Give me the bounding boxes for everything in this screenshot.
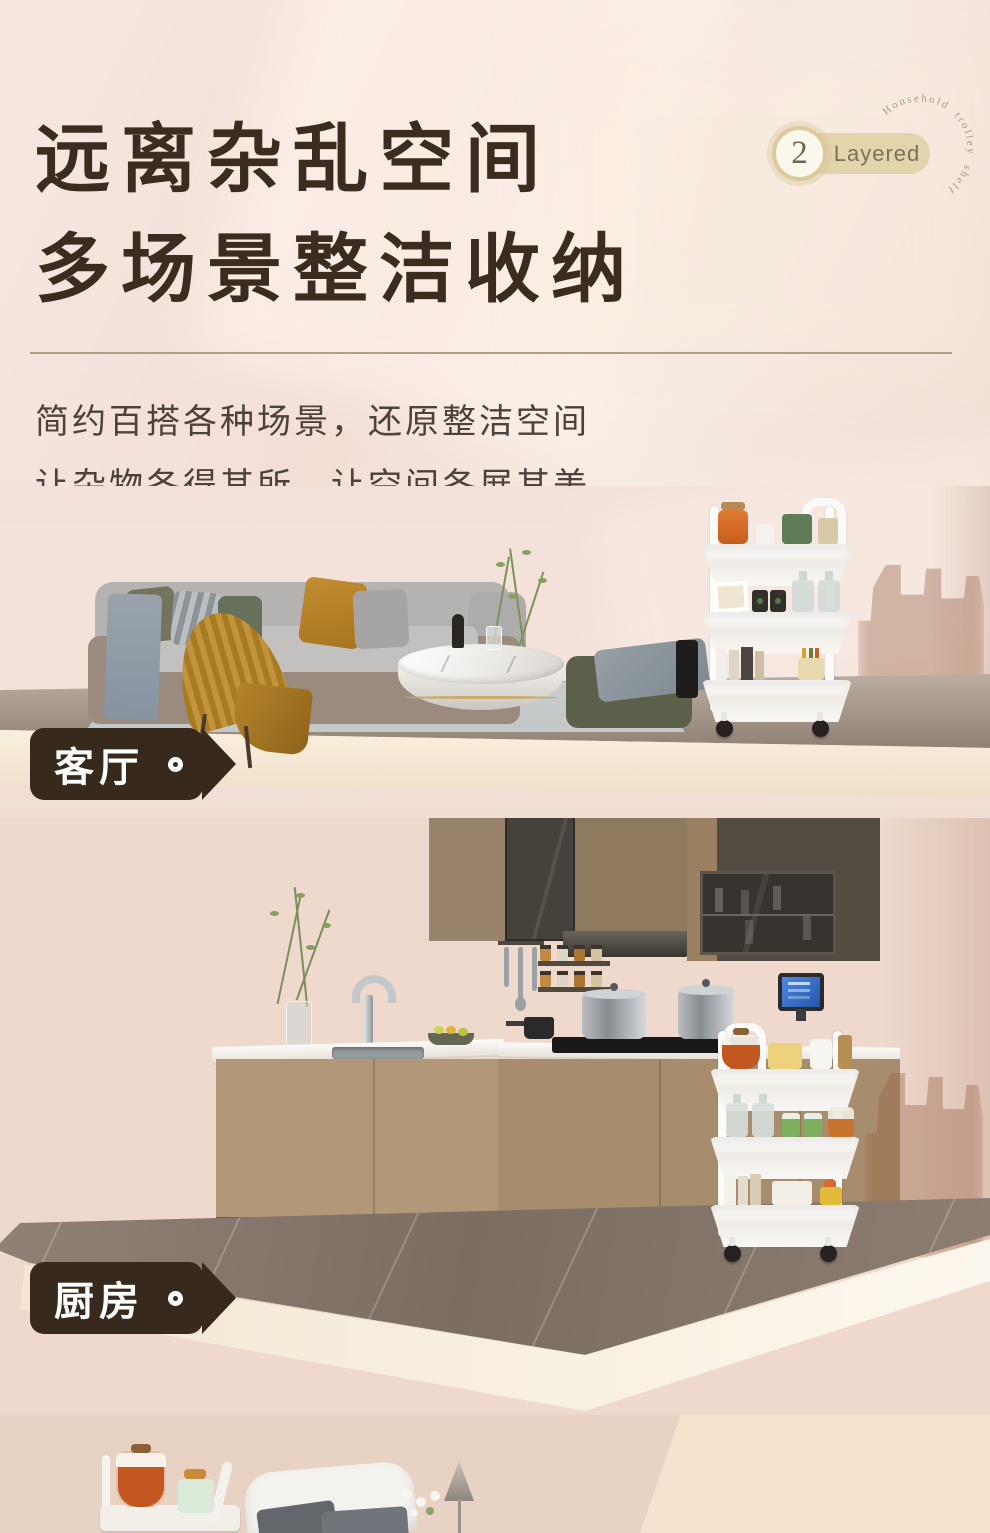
floor-lamp-shade <box>444 1461 474 1501</box>
page-title: 远离杂乱空间 多场景整洁收纳 <box>35 104 637 324</box>
cup-item <box>756 524 774 544</box>
book-item <box>729 650 739 680</box>
glass-bottle-item <box>818 580 840 612</box>
caster-wheel <box>820 1245 837 1262</box>
scene-tag-label: 客厅 <box>54 735 144 793</box>
ring-icon <box>168 757 183 772</box>
box-item <box>772 1181 812 1205</box>
box-item <box>178 1479 214 1513</box>
table-glass-vase <box>486 626 502 650</box>
jar-item <box>810 1039 832 1069</box>
scene-tag-living-room: 客厅 <box>30 728 203 800</box>
spoon-utensil <box>518 947 523 1001</box>
teapot-item <box>722 1035 760 1069</box>
trolley-tier-items <box>714 1165 862 1205</box>
storage-trolley <box>700 498 860 743</box>
caster-wheel <box>716 720 733 737</box>
title-line-2: 多场景整洁收纳 <box>35 214 637 324</box>
ring-icon <box>168 1291 183 1306</box>
scene-tag-label: 厨房 <box>54 1269 144 1327</box>
box-item <box>782 514 812 544</box>
bed-pillow <box>321 1506 409 1533</box>
badge-number-circle: 2 <box>772 126 827 181</box>
cutting-board-item <box>838 1035 852 1069</box>
faucet <box>352 975 396 1003</box>
saucepan <box>524 1017 554 1039</box>
marble-vein-decor <box>420 654 540 674</box>
header-section: 远离杂乱空间 多场景整洁收纳 2 Layered Household troll… <box>0 0 990 490</box>
book-item <box>724 1173 736 1205</box>
plant-leaf <box>296 893 305 898</box>
whisk-utensil <box>532 947 537 991</box>
faucet-stem <box>364 995 373 1043</box>
storage-trolley <box>708 1023 868 1268</box>
jar-item <box>718 510 748 544</box>
spice-jar-row <box>540 945 610 961</box>
floor-speaker <box>676 640 698 698</box>
kitchen-scene: 厨房 <box>0 795 990 1415</box>
spice-jar-row <box>540 971 610 987</box>
photo-frame-item <box>713 581 749 613</box>
plant-leaf <box>322 923 331 928</box>
cooking-pot <box>582 995 646 1039</box>
living-room-scene: 客厅 <box>0 486 990 818</box>
product-detail-poster: 远离杂乱空间 多场景整洁收纳 2 Layered Household troll… <box>0 0 990 1533</box>
fruit-bowl <box>428 1033 474 1045</box>
book-item <box>741 647 753 680</box>
title-line-1: 远离杂乱空间 <box>35 104 637 214</box>
drink-can-item <box>782 1113 800 1137</box>
spice-rack-shelf <box>538 961 610 966</box>
lower-cabinets-left <box>216 1059 502 1231</box>
trolley-tier-items <box>706 504 854 544</box>
utensil-rail <box>498 941 544 945</box>
box-item <box>768 1043 802 1069</box>
wall-tablet <box>778 973 824 1011</box>
subtitle-line-1: 简约百搭各种场景，还原整洁空间 <box>35 390 590 454</box>
caster-wheel <box>724 1245 741 1262</box>
caster-wheel <box>812 720 829 737</box>
coffee-cup-item <box>752 590 768 612</box>
glass-vase <box>286 1001 312 1049</box>
glass-cabinet-door <box>505 799 575 941</box>
book-item <box>738 1176 748 1205</box>
plant-leaf <box>306 945 315 950</box>
divider-line <box>30 352 952 354</box>
coffee-table-gold-trim <box>404 696 558 699</box>
trolley-tier-items <box>714 1097 862 1137</box>
plant-leaf <box>270 911 279 916</box>
book-item <box>755 651 764 680</box>
glass-bottle-item <box>792 580 814 612</box>
plant-leaf <box>496 562 505 567</box>
juice-jug-item <box>828 1107 854 1137</box>
coffee-cup-item <box>770 590 786 612</box>
badge-number: 2 <box>791 135 808 172</box>
book-item <box>716 648 727 680</box>
trolley-tier-items <box>714 1029 862 1069</box>
drink-can-item <box>804 1113 822 1137</box>
scene-tag-kitchen: 厨房 <box>30 1262 203 1334</box>
trolley-tier-items <box>706 572 854 612</box>
table-sculpture <box>452 614 464 648</box>
container-item <box>818 518 838 544</box>
cabinet-seam <box>659 1059 661 1221</box>
plant-leaf <box>522 550 531 555</box>
upper-cabinet-tall <box>429 799 575 941</box>
plant-leaf <box>538 578 547 583</box>
scissors-item <box>820 1187 842 1205</box>
kitchen-sink <box>332 1047 424 1059</box>
spatula-utensil <box>504 947 509 987</box>
throw-blanket <box>104 593 162 721</box>
cabinet-seam <box>373 1059 375 1231</box>
teapot-item <box>116 1451 166 1509</box>
pen-holder-item <box>798 658 824 680</box>
glass-bottle-item <box>726 1103 748 1137</box>
badge-label: Layered <box>834 141 921 167</box>
book-item <box>750 1174 761 1205</box>
floor-lamp-pole <box>458 1499 461 1533</box>
throw-pillow <box>353 589 410 650</box>
flower-bouquet <box>402 1489 450 1533</box>
glass-bottle-item <box>752 1103 774 1137</box>
glass-display-cabinet <box>700 871 836 955</box>
plant-leaf <box>508 594 517 599</box>
trolley-tier-items <box>706 640 854 680</box>
